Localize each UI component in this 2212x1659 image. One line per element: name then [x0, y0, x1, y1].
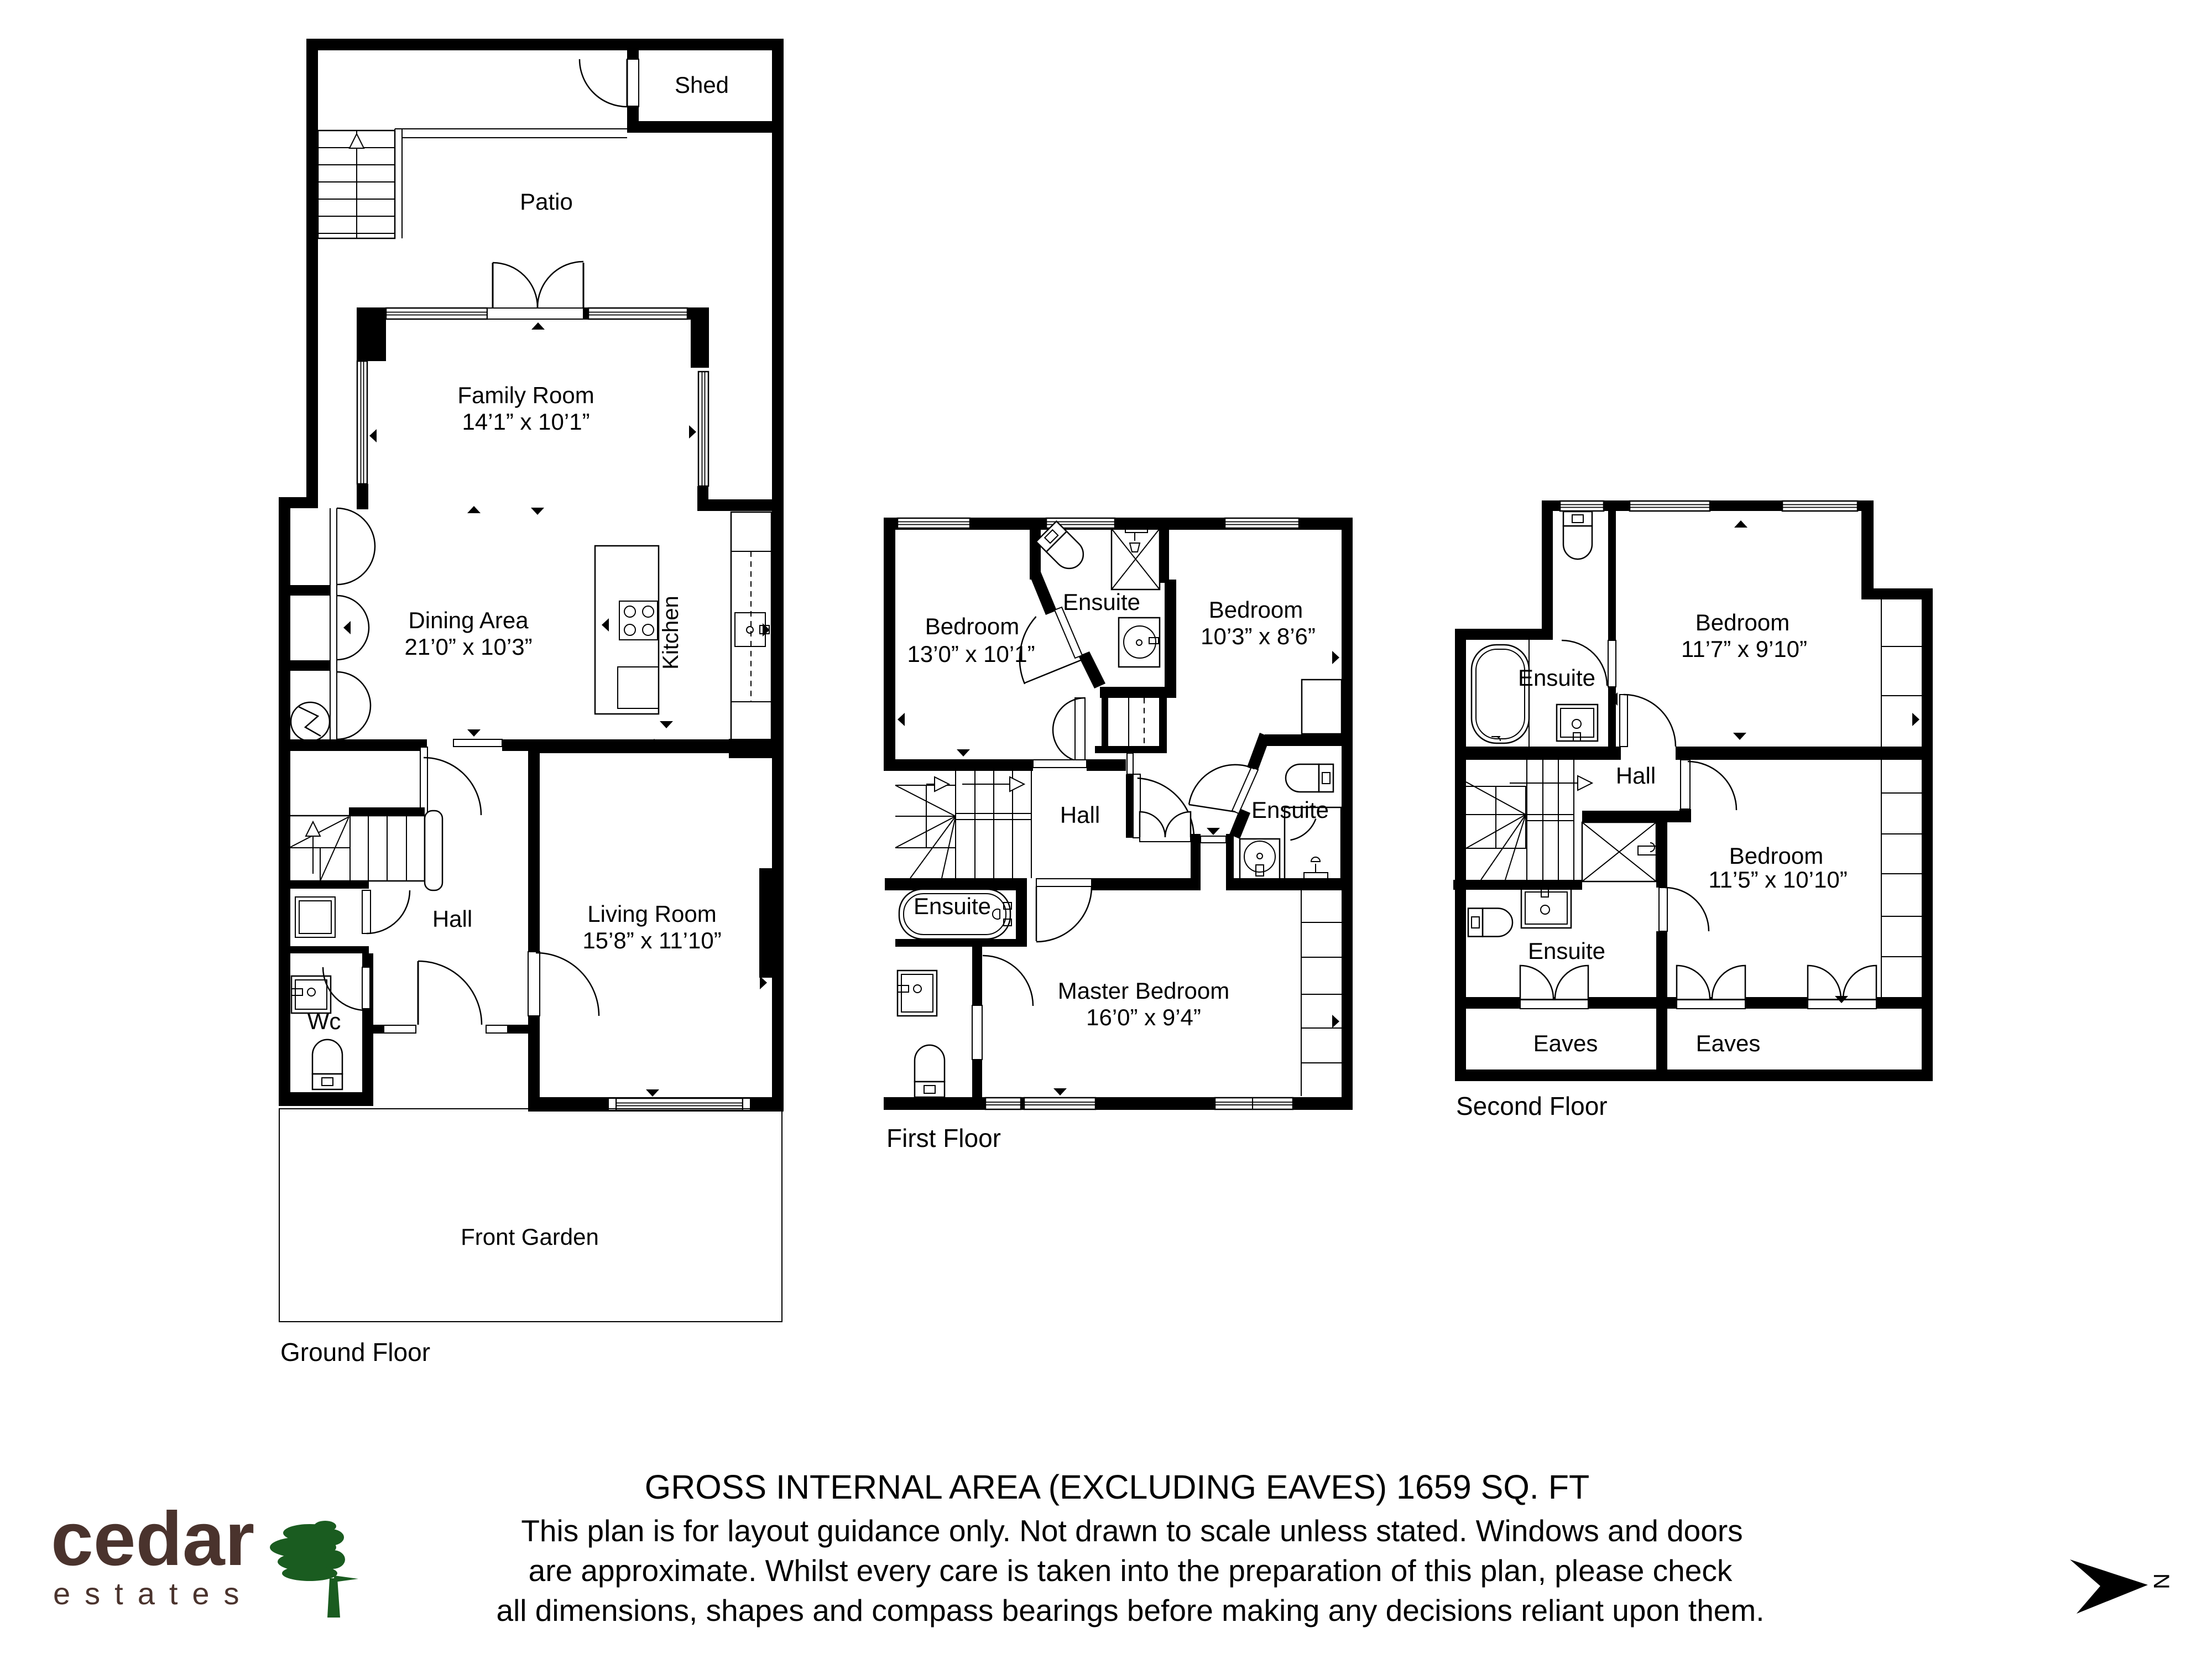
svg-text:Front Garden: Front Garden — [461, 1224, 599, 1250]
svg-text:Living Room: Living Room — [587, 901, 716, 927]
svg-text:Shed: Shed — [675, 72, 729, 98]
svg-text:estates: estates — [53, 1576, 254, 1611]
svg-text:Hall: Hall — [432, 906, 472, 932]
svg-text:Eaves: Eaves — [1533, 1030, 1598, 1056]
svg-text:15’8” x 11’10”: 15’8” x 11’10” — [582, 927, 721, 953]
svg-text:First Floor: First Floor — [886, 1124, 1001, 1152]
svg-text:Ground Floor: Ground Floor — [280, 1338, 430, 1366]
svg-text:Bedroom: Bedroom — [925, 613, 1019, 639]
svg-text:14’1” x 10’1”: 14’1” x 10’1” — [462, 409, 589, 435]
svg-text:Ensuite: Ensuite — [914, 893, 991, 919]
svg-text:Ensuite: Ensuite — [1063, 589, 1140, 615]
svg-text:Bedroom: Bedroom — [1695, 609, 1790, 635]
svg-text:Hall: Hall — [1616, 763, 1656, 789]
svg-text:Bedroom: Bedroom — [1729, 843, 1823, 869]
svg-text:Family Room: Family Room — [457, 382, 594, 408]
svg-text:21’0” x 10’3”: 21’0” x 10’3” — [404, 634, 532, 660]
svg-text:10’3” x 8’6”: 10’3” x 8’6” — [1201, 623, 1316, 649]
svg-text:Patio: Patio — [520, 189, 573, 215]
svg-text:Ensuite: Ensuite — [1251, 797, 1329, 823]
svg-text:11’5” x 10’10”: 11’5” x 10’10” — [1708, 867, 1847, 893]
svg-text:all dimensions, shapes and com: all dimensions, shapes and compass beari… — [497, 1593, 1765, 1627]
svg-text:13’0” x 10’1”: 13’0” x 10’1” — [907, 641, 1035, 667]
svg-text:GROSS INTERNAL AREA (EXCLUDING: GROSS INTERNAL AREA (EXCLUDING EAVES) 16… — [645, 1468, 1589, 1506]
svg-text:cedar: cedar — [51, 1496, 254, 1582]
svg-text:Kitchen: Kitchen — [659, 596, 683, 669]
svg-text:are approximate. Whilst every: are approximate. Whilst every care is ta… — [529, 1553, 1733, 1588]
svg-text:Hall: Hall — [1060, 802, 1100, 828]
svg-text:N: N — [2149, 1573, 2173, 1589]
svg-text:Ensuite: Ensuite — [1518, 665, 1595, 691]
svg-text:Eaves: Eaves — [1696, 1030, 1761, 1056]
svg-text:Ensuite: Ensuite — [1528, 938, 1605, 964]
svg-text:Dining Area: Dining Area — [408, 607, 529, 633]
svg-text:Wc: Wc — [307, 1008, 341, 1034]
svg-text:Second Floor: Second Floor — [1456, 1092, 1608, 1120]
svg-text:Master Bedroom: Master Bedroom — [1058, 978, 1229, 1004]
svg-text:16’0” x 9’4”: 16’0” x 9’4” — [1086, 1004, 1201, 1030]
svg-text:Bedroom: Bedroom — [1209, 597, 1303, 623]
svg-text:This plan is for layout guidan: This plan is for layout guidance only. N… — [521, 1514, 1743, 1548]
svg-text:11’7” x 9’10”: 11’7” x 9’10” — [1681, 636, 1807, 662]
